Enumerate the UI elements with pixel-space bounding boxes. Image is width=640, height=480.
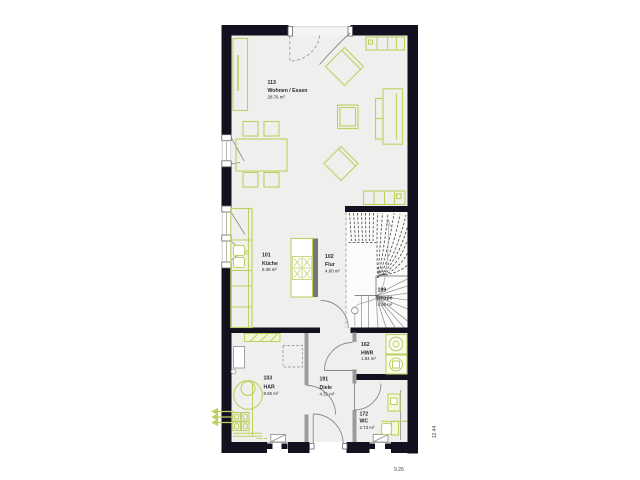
svg-text:12.44: 12.44 xyxy=(432,426,438,439)
svg-text:4.31 m²: 4.31 m² xyxy=(320,392,335,397)
svg-text:Flur: Flur xyxy=(325,262,335,268)
svg-text:4.36 m²: 4.36 m² xyxy=(378,302,393,307)
svg-text:2.73 m²: 2.73 m² xyxy=(360,425,375,430)
svg-text:Treppe: Treppe xyxy=(376,296,393,302)
svg-text:103: 103 xyxy=(264,376,273,382)
svg-text:8.38 m²: 8.38 m² xyxy=(262,267,277,272)
svg-text:191: 191 xyxy=(320,377,329,383)
svg-text:4.80 m²: 4.80 m² xyxy=(325,269,340,274)
svg-text:Diele: Diele xyxy=(320,385,333,391)
svg-text:HAR: HAR xyxy=(264,385,275,391)
svg-text:113: 113 xyxy=(268,80,276,86)
svg-text:WC: WC xyxy=(360,419,369,425)
svg-text:9.26: 9.26 xyxy=(394,467,404,473)
svg-text:102: 102 xyxy=(325,254,334,260)
svg-text:1.84 m²: 1.84 m² xyxy=(361,356,376,361)
svg-text:28.76 m²: 28.76 m² xyxy=(268,95,286,100)
svg-text:162: 162 xyxy=(361,342,370,348)
svg-text:8.85 m²: 8.85 m² xyxy=(264,391,279,396)
svg-text:101: 101 xyxy=(262,253,271,259)
svg-text:199: 199 xyxy=(378,288,387,294)
svg-text:172: 172 xyxy=(360,412,369,418)
svg-text:Wohnen / Essen: Wohnen / Essen xyxy=(268,88,308,94)
